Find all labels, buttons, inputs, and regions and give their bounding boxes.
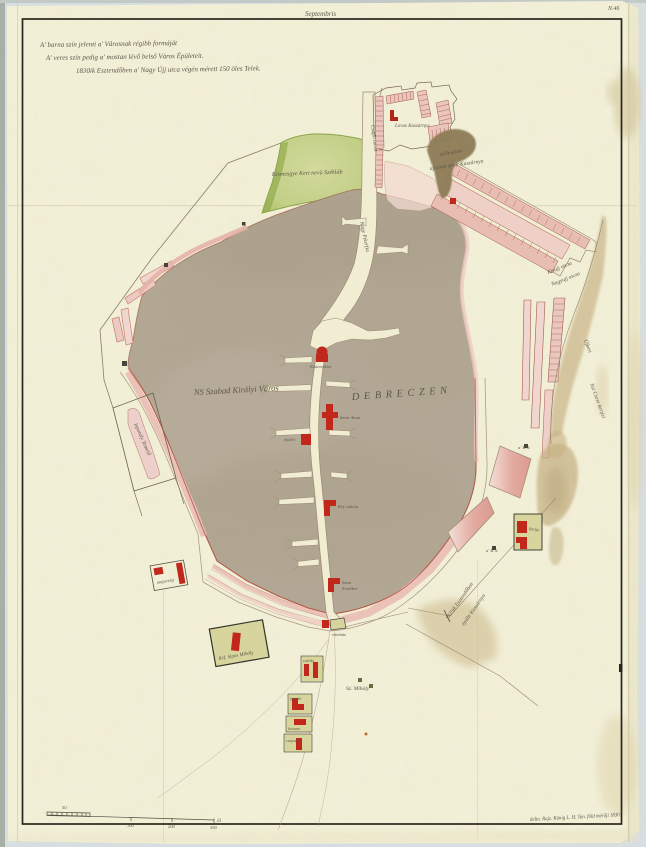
svg-text:a' B. k.: a' B. k. xyxy=(518,445,530,450)
svg-text:épület: épület xyxy=(284,437,296,442)
svg-text:N.46: N.46 xyxy=(607,5,620,12)
svg-text:300: 300 xyxy=(210,825,218,830)
svg-text:kocsma: kocsma xyxy=(288,726,300,731)
svg-text:Kistemplom: Kistemplom xyxy=(309,364,332,369)
svg-text:a' B. k.: a' B. k. xyxy=(486,548,498,553)
svg-text:csapszék: csapszék xyxy=(286,738,300,743)
svg-text:Erzsébet: Erzsébet xyxy=(341,586,358,591)
svg-text:50: 50 xyxy=(62,805,67,810)
svg-text:Septembris: Septembris xyxy=(305,10,336,18)
svg-text:100: 100 xyxy=(127,823,135,828)
svg-text:Szent Anna: Szent Anna xyxy=(340,415,361,420)
svg-text:Ref. oskola: Ref. oskola xyxy=(337,504,359,509)
svg-text:csárda: csárda xyxy=(303,658,314,663)
svg-text:Szent: Szent xyxy=(342,580,352,585)
svg-text:öl: öl xyxy=(217,819,222,824)
svg-text:200: 200 xyxy=(168,824,176,829)
svg-text:Lovas Kaszárnya: Lovas Kaszárnya xyxy=(394,124,430,129)
svg-text:Sz. Mihály: Sz. Mihály xyxy=(346,686,370,692)
svg-text:fogadó: fogadó xyxy=(290,696,301,701)
